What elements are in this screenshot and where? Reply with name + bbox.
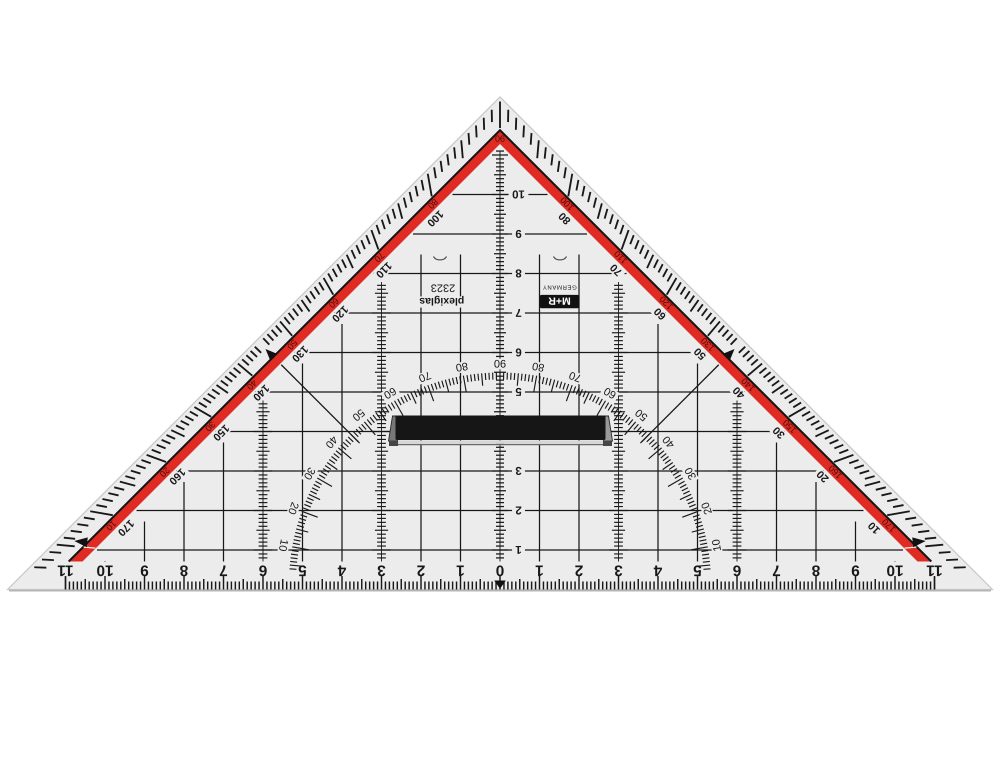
svg-text:1: 1 — [535, 561, 544, 578]
svg-text:80: 80 — [531, 359, 545, 373]
svg-text:10: 10 — [96, 561, 113, 578]
svg-text:5: 5 — [298, 561, 307, 578]
svg-text:3: 3 — [377, 561, 386, 578]
svg-text:9: 9 — [515, 227, 521, 239]
svg-text:10: 10 — [276, 538, 290, 552]
svg-text:0: 0 — [496, 561, 505, 578]
svg-text:8: 8 — [811, 561, 820, 578]
svg-text:4: 4 — [337, 561, 346, 578]
svg-text:11: 11 — [57, 561, 74, 578]
svg-text:10: 10 — [886, 561, 903, 578]
svg-text:8: 8 — [515, 266, 522, 278]
svg-text:7: 7 — [515, 306, 521, 318]
svg-text:10: 10 — [710, 538, 724, 552]
svg-text:6: 6 — [259, 561, 268, 578]
svg-text:GERMANY: GERMANY — [542, 283, 577, 290]
svg-text:10: 10 — [512, 187, 525, 199]
svg-text:1: 1 — [515, 543, 522, 555]
svg-text:90: 90 — [495, 134, 505, 144]
svg-text:3: 3 — [515, 464, 521, 476]
svg-text:5: 5 — [515, 385, 522, 397]
svg-text:9: 9 — [140, 561, 149, 578]
svg-text:3: 3 — [614, 561, 623, 578]
svg-text:8: 8 — [179, 561, 188, 578]
svg-text:7: 7 — [219, 561, 228, 578]
svg-text:6: 6 — [733, 561, 742, 578]
svg-text:2: 2 — [575, 561, 584, 578]
svg-text:2323: 2323 — [431, 282, 455, 294]
svg-text:2: 2 — [515, 503, 521, 515]
svg-text:1: 1 — [456, 561, 465, 578]
svg-text:4: 4 — [653, 561, 662, 578]
svg-text:90: 90 — [494, 357, 506, 369]
svg-text:80: 80 — [455, 359, 469, 373]
svg-text:6: 6 — [515, 345, 521, 357]
svg-text:9: 9 — [851, 561, 860, 578]
svg-text:M+R: M+R — [548, 295, 571, 307]
svg-text:plexiglas: plexiglas — [419, 295, 464, 307]
svg-text:2: 2 — [417, 561, 426, 578]
svg-text:11: 11 — [926, 561, 943, 578]
svg-text:5: 5 — [693, 561, 702, 578]
svg-text:7: 7 — [772, 561, 781, 578]
